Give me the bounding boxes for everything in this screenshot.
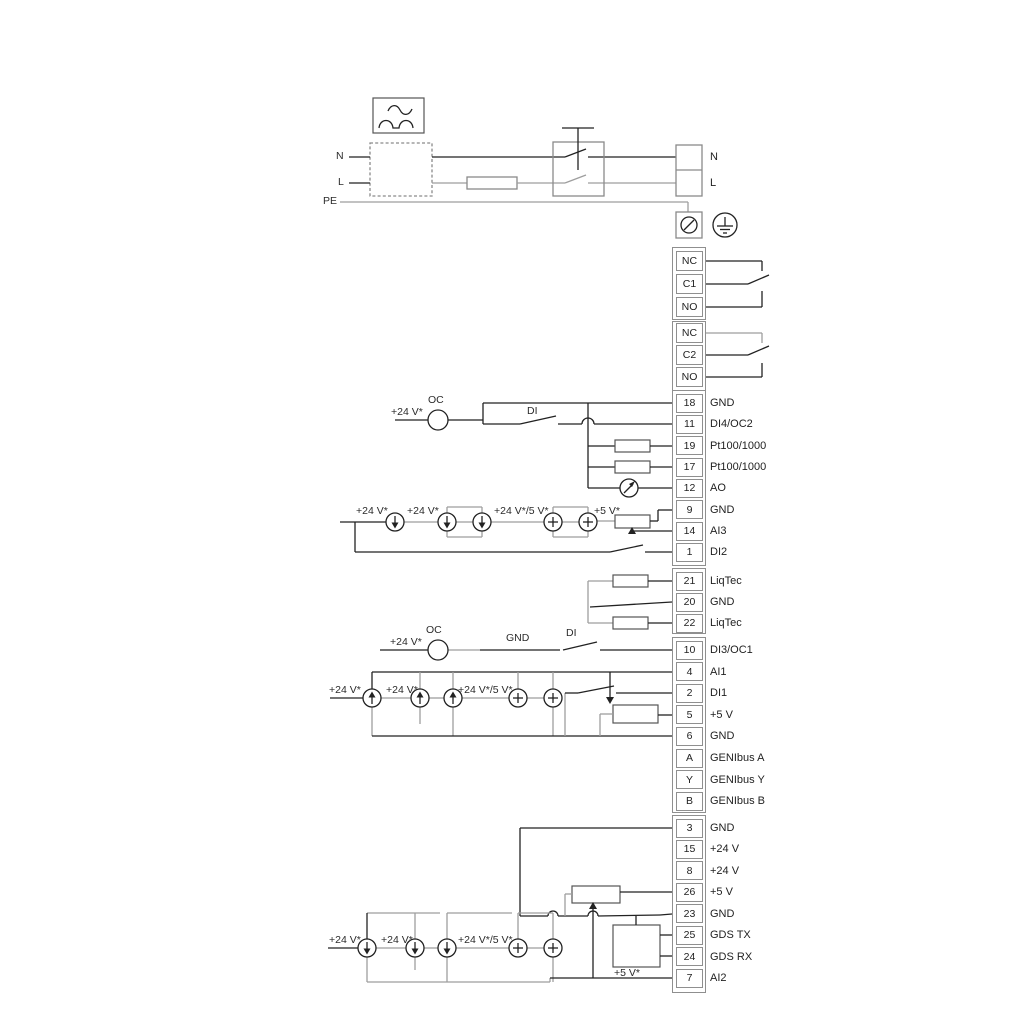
gds-sensor (613, 916, 672, 967)
terminal-label-io1-9: GND (710, 503, 734, 517)
wire-label-plus24: +24 V* (381, 934, 413, 947)
terminal-io2-Y: Y (676, 770, 703, 789)
terminal-io3-23: 23 (676, 904, 703, 923)
terminal-io1-17: 17 (676, 458, 703, 477)
terminal-label-io2-A: GENIbus A (710, 751, 764, 765)
terminal-label-io2-Y: GENIbus Y (710, 773, 765, 787)
terminal-io1-1: 1 (676, 543, 703, 562)
voltage-source-icon (544, 939, 562, 957)
current-source-icon (438, 513, 456, 531)
terminal-io1-18: 18 (676, 394, 703, 413)
wire-label-di: DI (527, 405, 538, 418)
terminal-liqtec-21: 21 (676, 572, 703, 591)
terminal-label-io3-25: GDS TX (710, 928, 751, 942)
wire-label-oc: OC (428, 394, 444, 407)
terminal-label-io2-5: +5 V (710, 708, 733, 722)
terminal-label-io1-1: DI2 (710, 545, 727, 559)
terminal-io1-12: 12 (676, 479, 703, 498)
terminal-io2-6: 6 (676, 727, 703, 746)
terminal-io2-4: 4 (676, 662, 703, 681)
terminal-label-liqtec-20: GND (710, 595, 734, 609)
terminal-io3-3: 3 (676, 819, 703, 838)
wire-label-plus24_5: +24 V*/5 V* (458, 934, 513, 947)
terminal-liqtec-20: 20 (676, 593, 703, 612)
wire-label-plus24: +24 V* (391, 406, 423, 419)
terminal-relay2-C2: C2 (676, 345, 703, 365)
di1-switch (578, 686, 614, 693)
terminal-label-mains-1: L (710, 176, 716, 190)
terminal-liqtec-22: 22 (676, 614, 703, 633)
terminal-io1-19: 19 (676, 436, 703, 455)
terminal-label-io3-26: +5 V (710, 885, 733, 899)
ao-meter (588, 479, 672, 497)
liqtec-resistor-21 (613, 575, 648, 587)
terminal-label-io2-10: DI3/OC1 (710, 643, 753, 657)
terminal-io1-14: 14 (676, 522, 703, 541)
terminal-relay1-NO: NO (676, 297, 703, 317)
wire-label-plus24: +24 V* (329, 684, 361, 697)
terminal-io3-25: 25 (676, 926, 703, 945)
liqtec-resistor-22 (613, 617, 648, 629)
relay1-contact (703, 261, 769, 307)
terminal-io2-10: 10 (676, 641, 703, 660)
potentiometer-ai3 (615, 515, 650, 528)
terminal-io2-B: B (676, 792, 703, 811)
terminal-label-io1-12: AO (710, 481, 726, 495)
wire-label-plus24: +24 V* (407, 505, 439, 518)
di4-switch (520, 416, 556, 424)
wire-label-plus24_5: +24 V*/5 V* (494, 505, 549, 518)
terminal-label-io1-17: Pt100/1000 (710, 460, 766, 474)
terminal-label-io3-15: +24 V (710, 842, 739, 856)
terminal-label-io3-3: GND (710, 821, 734, 835)
terminal-io3-15: 15 (676, 840, 703, 859)
switch-blade-l (565, 175, 586, 183)
terminal-label-io3-7: AI2 (710, 971, 727, 985)
switch-blade-n (565, 149, 586, 157)
wire-label-plus24: +24 V* (386, 684, 418, 697)
wiring-diagram: NLNCC1NONCC2NO18GND11DI4/OC219Pt100/1000… (0, 0, 1024, 1024)
current-source-icon (363, 689, 381, 707)
terminal-io3-24: 24 (676, 947, 703, 966)
terminal-relay2-NC: NC (676, 323, 703, 343)
terminal-label-io2-2: DI1 (710, 686, 727, 700)
terminal-io2-A: A (676, 749, 703, 768)
terminal-io2-2: 2 (676, 684, 703, 703)
wire-label-plus24: +24 V* (390, 636, 422, 649)
terminal-label-io3-8: +24 V (710, 864, 739, 878)
terminal-label-liqtec-21: LiqTec (710, 574, 742, 588)
terminal-label-io2-B: GENIbus B (710, 794, 765, 808)
wire-label-l: L (338, 176, 344, 189)
di2-switch (610, 545, 643, 552)
open-collector-circle (428, 410, 448, 430)
terminal-label-io1-11: DI4/OC2 (710, 417, 753, 431)
ai1-group (330, 672, 672, 736)
relay2-contact (703, 333, 769, 377)
open-collector-circle (428, 640, 448, 660)
wire-label-plus24_5: +24 V*/5 V* (458, 684, 513, 697)
wiper-arrow (606, 697, 614, 704)
wire-label-di: DI (566, 627, 577, 640)
terminal-label-io1-18: GND (710, 396, 734, 410)
earth-symbol (713, 213, 737, 237)
wire-label-pe: PE (323, 195, 337, 208)
terminal-io3-26: 26 (676, 883, 703, 902)
terminal-label-mains-0: N (710, 150, 718, 164)
wire-label-plus24: +24 V* (329, 934, 361, 947)
wire-label-oc: OC (426, 624, 442, 637)
fuse (467, 177, 517, 189)
current-source-icon (438, 939, 456, 957)
terminal-io3-7: 7 (676, 969, 703, 988)
terminal-io1-11: 11 (676, 415, 703, 434)
terminal-relay1-C1: C1 (676, 274, 703, 294)
potentiometer-ai1 (613, 705, 658, 723)
pt100-resistor-19 (615, 440, 650, 452)
terminal-label-io3-23: GND (710, 907, 734, 921)
terminal-label-liqtec-22: LiqTec (710, 616, 742, 630)
voltage-source-icon (544, 689, 562, 707)
current-source-icon (473, 513, 491, 531)
pt100-resistor-17 (615, 461, 650, 473)
terminal-label-io1-14: AI3 (710, 524, 727, 538)
di3-switch (563, 642, 597, 650)
pt100-sensors (588, 440, 672, 473)
liqtec-circuit (588, 575, 672, 629)
wire-label-plus24: +24 V* (356, 505, 388, 518)
terminal-relay1-NC: NC (676, 251, 703, 271)
wire-label-plus5: +5 V* (594, 505, 620, 518)
gds-sensor-box (613, 925, 660, 967)
terminal-io1-9: 9 (676, 500, 703, 519)
wire-label-n: N (336, 150, 344, 163)
emc-filter-box (370, 143, 432, 196)
wire-label-gnd: GND (506, 632, 529, 645)
terminal-relay2-NO: NO (676, 367, 703, 387)
terminal-label-io2-4: AI1 (710, 665, 727, 679)
power-section (340, 98, 737, 238)
wire-label-plus5: +5 V* (614, 967, 640, 980)
terminal-label-io2-6: GND (710, 729, 734, 743)
terminal-io2-5: 5 (676, 705, 703, 724)
terminal-io3-8: 8 (676, 861, 703, 880)
potentiometer-ai2 (572, 886, 620, 903)
terminal-label-io1-19: Pt100/1000 (710, 439, 766, 453)
terminal-label-io3-24: GDS RX (710, 950, 752, 964)
current-source-icon (386, 513, 404, 531)
